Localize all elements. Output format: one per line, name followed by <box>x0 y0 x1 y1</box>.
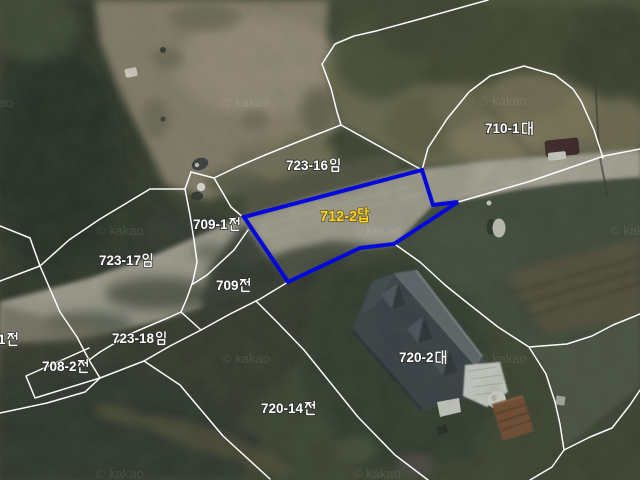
svg-text:© kakao: © kakao <box>479 93 527 108</box>
svg-text:© kakao: © kakao <box>479 351 527 366</box>
svg-text:© kakao: © kakao <box>96 466 144 480</box>
svg-text:723-18: 723-18 <box>112 331 155 346</box>
svg-text:712-2: 712-2 <box>320 209 357 225</box>
svg-text:1: 1 <box>0 332 6 347</box>
svg-text:© kakao: © kakao <box>96 223 144 238</box>
svg-text:709: 709 <box>216 278 239 293</box>
svg-text:709-1: 709-1 <box>193 217 228 232</box>
svg-text:© kakao: © kakao <box>353 223 401 238</box>
svg-text:© kakao: © kakao <box>222 351 270 366</box>
svg-text:© kakao: © kakao <box>222 95 270 110</box>
svg-text:720-14: 720-14 <box>261 401 304 416</box>
svg-text:708-2: 708-2 <box>42 359 77 374</box>
svg-text:723-16: 723-16 <box>286 158 329 173</box>
svg-text:© kakao: © kakao <box>610 223 640 238</box>
svg-text:© kakao: © kakao <box>0 95 13 110</box>
svg-text:720-2: 720-2 <box>399 350 434 365</box>
svg-text:© kakao: © kakao <box>353 466 401 480</box>
svg-text:710-1: 710-1 <box>485 121 520 136</box>
svg-text:723-17: 723-17 <box>99 253 141 268</box>
